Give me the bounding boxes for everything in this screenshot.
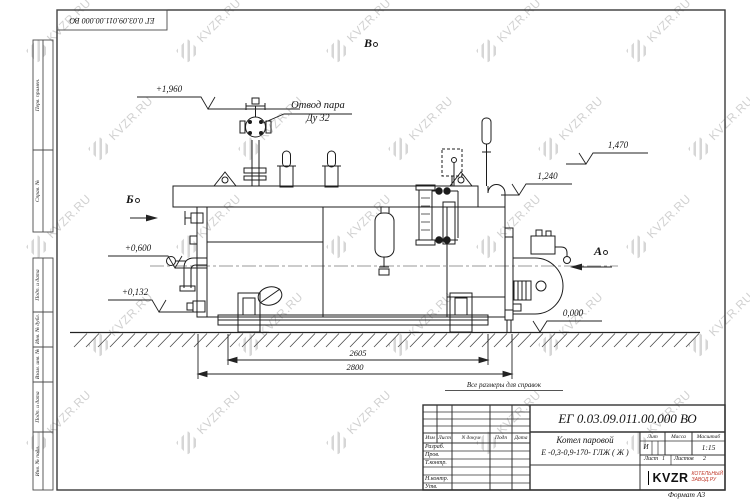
elevation-label: +0,132 bbox=[104, 288, 166, 298]
view-marker-v: В bbox=[364, 37, 378, 50]
tb-sheets-num: 2 bbox=[703, 456, 706, 463]
logo-text: KVZR bbox=[652, 471, 688, 485]
front-fittings bbox=[167, 211, 208, 312]
callout-steam-outlet-dn: Ду 32 bbox=[280, 113, 356, 124]
frame-column-label: Инв. № дубл. bbox=[35, 314, 41, 344]
format-label: Формат А3 bbox=[648, 491, 725, 499]
safety-valves bbox=[277, 151, 341, 187]
frame-column-label: Перв. примен. bbox=[35, 79, 41, 112]
elevation-label: +0,600 bbox=[104, 244, 172, 254]
tb-scale-label: Масштаб bbox=[692, 434, 725, 440]
title-designation: ЕГ 0.03.09.011.00.000 ВО bbox=[532, 407, 723, 431]
tb-header-data: Дата bbox=[512, 435, 530, 441]
steam-valve bbox=[240, 98, 271, 186]
drawing-sheet: KVZR.RUKVZR.RUKVZR.RUKVZR.RUKVZR.RUKVZR.… bbox=[0, 0, 750, 500]
water-gauge bbox=[375, 185, 458, 275]
dimension-value: 2605 bbox=[318, 349, 398, 358]
frame-column-label: Инв. № подл. bbox=[35, 446, 41, 476]
elevation-label: 1,470 bbox=[588, 141, 648, 151]
tb-row-utv: Утв. bbox=[425, 484, 437, 491]
callout-steam-outlet: Отвод пара bbox=[280, 100, 356, 112]
top-fittings bbox=[442, 118, 505, 236]
tb-row-nkontr: Н.контр. bbox=[425, 476, 448, 483]
logo-subtitle-2: ЗАВОД.РУ bbox=[692, 478, 723, 484]
tb-header-list: Лист bbox=[437, 435, 452, 441]
tb-mass-label: Масса bbox=[665, 434, 692, 440]
frame-column-label: Подп. и дата bbox=[35, 269, 41, 300]
view-marker-a: А bbox=[594, 245, 608, 258]
tb-lit-value: И bbox=[640, 444, 652, 452]
tb-scale-value: 1:15 bbox=[692, 444, 725, 452]
tb-row-prov: Пров. bbox=[425, 452, 439, 459]
product-type: Е -0,3-0,9-170- ГЛЖ ( Ж ) bbox=[531, 449, 639, 458]
elevation-label: +1,960 bbox=[134, 85, 204, 95]
ground-line bbox=[70, 333, 700, 348]
tb-header-ndoc: N докум bbox=[452, 435, 490, 441]
tb-lit-label: Лит bbox=[640, 434, 665, 440]
product-name: Котел паровой bbox=[531, 436, 639, 446]
tb-header-podp: Подп bbox=[490, 435, 512, 441]
ground-hatch bbox=[74, 334, 699, 348]
tb-sheets-label: Листов bbox=[674, 456, 694, 463]
view-marker-suffix bbox=[135, 198, 140, 203]
elevation-label: 1,240 bbox=[520, 172, 575, 182]
frame-column-label: Взам. инв. № bbox=[35, 349, 41, 379]
top-stamp-designation: ЕГ 0.03.09.011.00.000 ВО bbox=[57, 10, 167, 30]
view-marker-suffix bbox=[603, 250, 608, 255]
elevation-label: 0,000 bbox=[543, 309, 603, 319]
tb-row-razrab: Разраб. bbox=[425, 444, 444, 451]
dimension-value: 2800 bbox=[315, 363, 395, 372]
reference-note: Все размеры для справок bbox=[445, 382, 563, 391]
tb-sheet-label: Лист bbox=[644, 456, 658, 463]
lifting-lugs bbox=[214, 172, 472, 186]
logo-mark-icon bbox=[648, 471, 649, 485]
frame-column-label: Справ. № bbox=[35, 180, 41, 202]
view-marker-suffix bbox=[373, 42, 378, 47]
tb-header-izm: Изм bbox=[423, 435, 437, 441]
company-logo: KVZR КОТЕЛЬНЫЙ ЗАВОД.РУ bbox=[648, 467, 723, 488]
view-marker-b: Б bbox=[126, 193, 140, 206]
tb-row-tkontr: Т.контр. bbox=[425, 460, 447, 467]
frame-column-label: Подп. и дата bbox=[35, 391, 41, 422]
tb-sheet-num: 1 bbox=[662, 456, 665, 463]
